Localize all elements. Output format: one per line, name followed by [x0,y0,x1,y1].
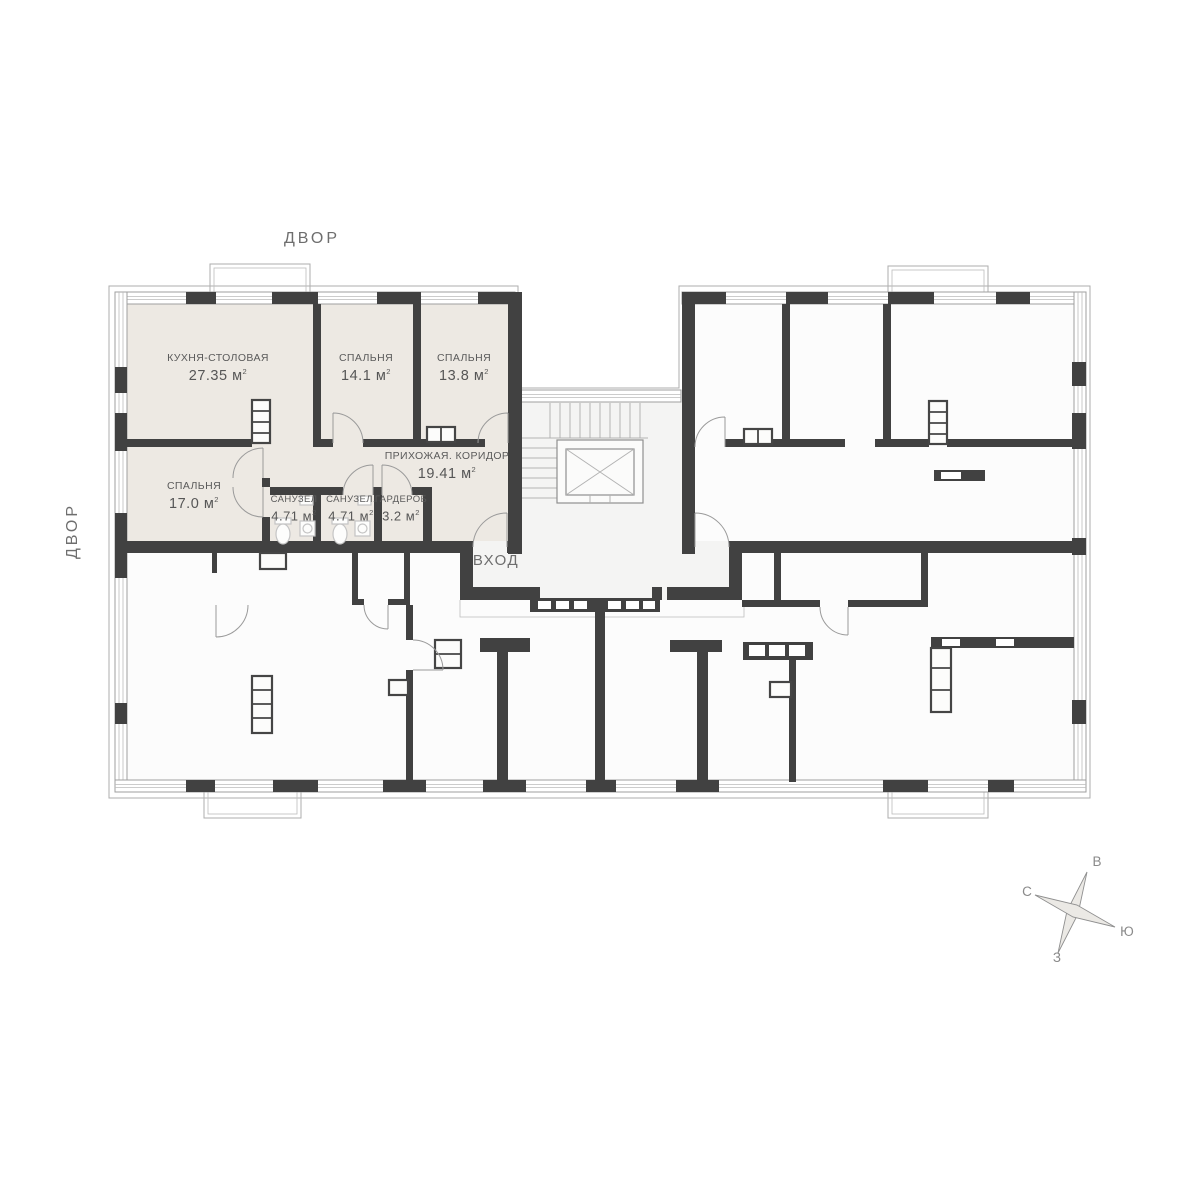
room-label-hallway: ПРИХОЖАЯ. КОРИДОР 19.41 м2 [385,450,510,482]
elevator [557,440,643,503]
compass-label-north: С [1022,884,1032,899]
room-area: 14.1 м2 [339,364,393,384]
compass-label-east: В [1092,854,1101,869]
room-name: САНУЗЕЛ [271,494,318,506]
compass-label-south: Ю [1120,924,1134,939]
room-name: САНУЗЕЛ. [326,494,376,506]
room-name: ГАРДЕРОБ [375,494,427,506]
courtyard-label-top: ДВОР [284,230,340,248]
room-area: 27.35 м2 [167,364,269,384]
compass-rose [1035,872,1115,953]
entrance-label: ВХОД [473,552,519,569]
room-label-bedroom-1: СПАЛЬНЯ 14.1 м2 [339,352,393,384]
room-label-wardrobe: ГАРДЕРОБ 3.2 м2 [375,494,427,523]
compass-label-west: З [1053,950,1061,965]
room-area: 4.71 м2 [326,506,376,523]
room-area: 17.0 м2 [167,492,221,512]
room-label-bedroom-2: СПАЛЬНЯ 13.8 м2 [437,352,491,384]
room-area: 3.2 м2 [375,506,427,523]
room-label-bedroom-3: СПАЛЬНЯ 17.0 м2 [167,480,221,512]
room-label-bathroom-2: САНУЗЕЛ. 4.71 м2 [326,494,376,523]
room-name: КУХНЯ-СТОЛОВАЯ [167,352,269,364]
floor-plan-page: ДВОР ДВОР ВХОД КУХНЯ-СТОЛОВАЯ 27.35 м2 С… [0,0,1200,1200]
floor-plan-drawing [0,0,1200,1200]
room-name: ПРИХОЖАЯ. КОРИДОР [385,450,510,462]
room-area: 19.41 м2 [385,462,510,482]
room-area: 4.71 м2 [271,506,318,523]
room-name: СПАЛЬНЯ [437,352,491,364]
room-label-kitchen-dining: КУХНЯ-СТОЛОВАЯ 27.35 м2 [167,352,269,384]
courtyard-label-left: ДВОР [64,503,82,559]
room-name: СПАЛЬНЯ [339,352,393,364]
room-area: 13.8 м2 [437,364,491,384]
room-name: СПАЛЬНЯ [167,480,221,492]
room-label-bathroom-1: САНУЗЕЛ 4.71 м2 [271,494,318,523]
